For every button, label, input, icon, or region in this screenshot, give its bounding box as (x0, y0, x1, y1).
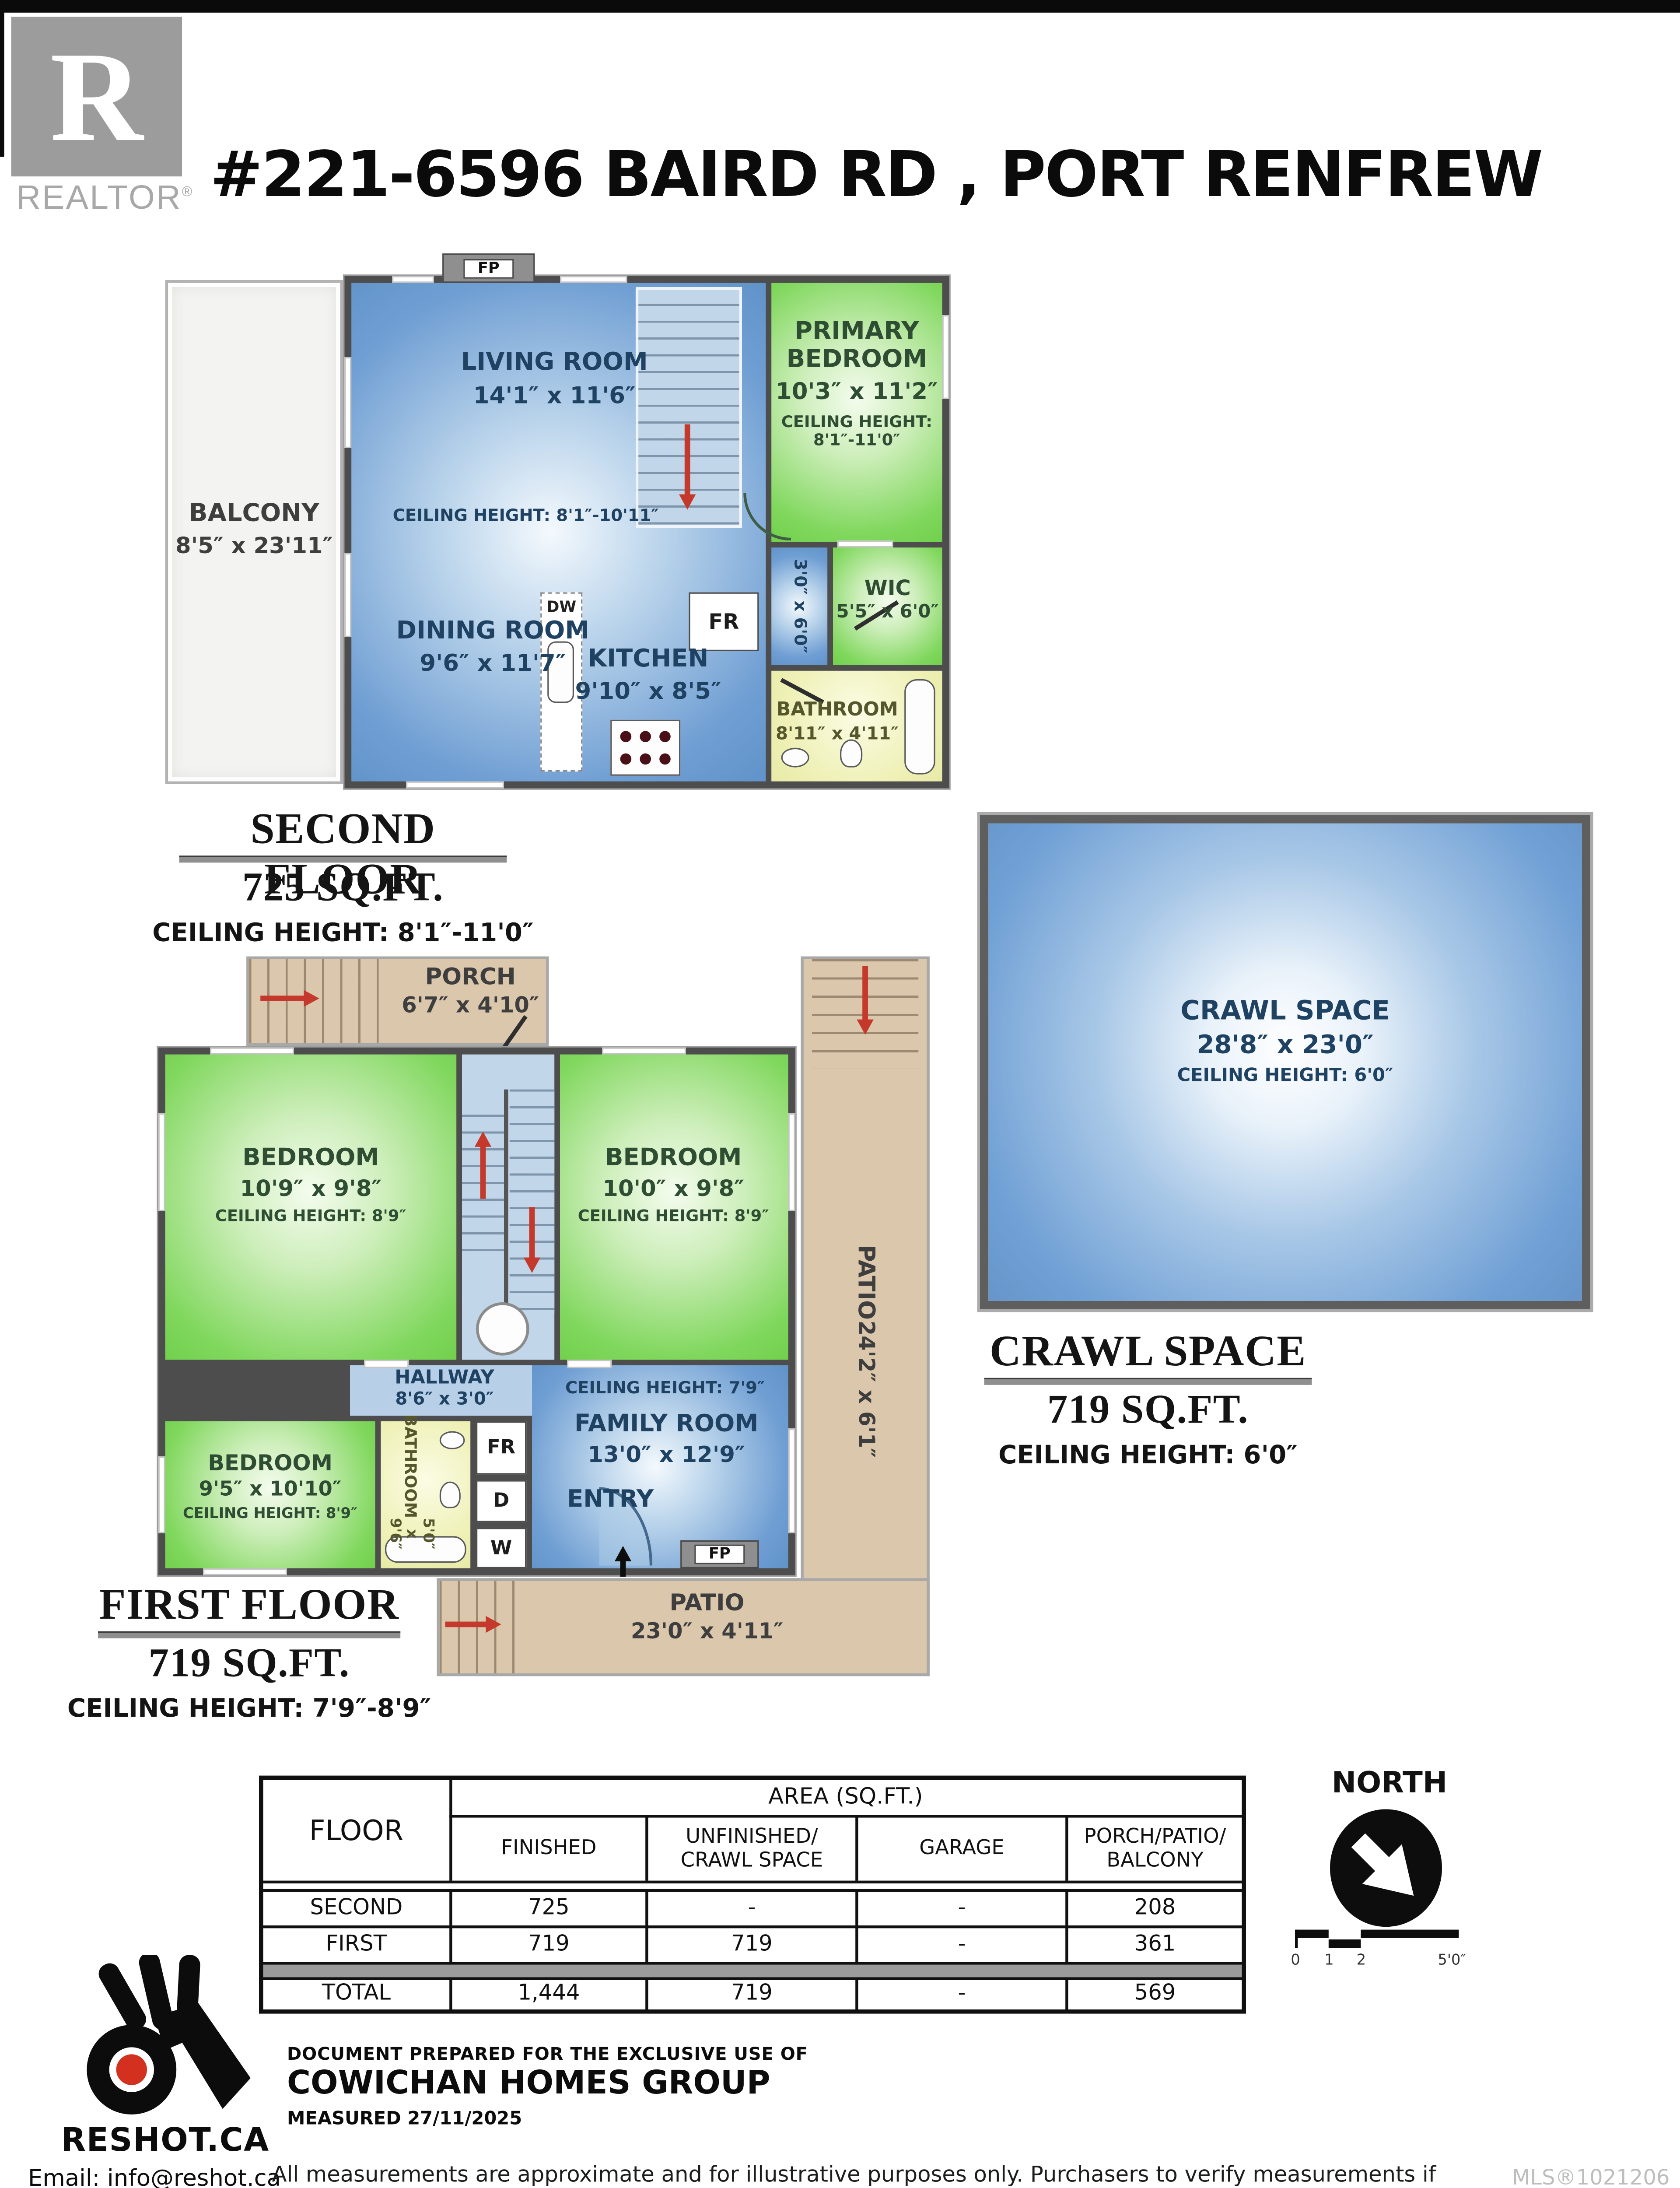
scale-bar-icon: 0 1 2 5'0″ (1291, 1930, 1473, 1972)
bedroom-tr-label: BEDROOM 10'0″ x 9'8″ CEILING HEIGHT: 8'9… (561, 1146, 785, 1225)
stair-landing-circle (476, 1302, 529, 1356)
fridge-label: FR (709, 609, 739, 635)
fireplace-first: FP (680, 1540, 759, 1568)
window (210, 1048, 294, 1055)
window (158, 1456, 165, 1533)
toilet-first-icon (440, 1482, 461, 1508)
table-value: 719 (651, 1928, 853, 1962)
first-floor-area: 719 SQ.FT. (81, 1641, 417, 1687)
bedroom-tl-name: BEDROOM (186, 1146, 436, 1172)
first-floor-ceiling: CEILING HEIGHT: 7'9″-8'9″ (39, 1694, 459, 1724)
table-row-label: TOTAL (263, 1977, 450, 2009)
bedroom-bl-name: BEDROOM (165, 1452, 375, 1476)
family-dims: 13'0″ x 12'9″ (549, 1442, 784, 1467)
realtor-word: REALTOR (17, 179, 182, 217)
fridge-second: FR (689, 593, 759, 651)
table-row-label: SECOND (263, 1892, 450, 1925)
table-line (1065, 1815, 1068, 2009)
porch-label: PORCH 6'7″ x 4'10″ (395, 965, 546, 1019)
dryer: D (476, 1480, 526, 1522)
porch-name: PORCH (395, 965, 546, 991)
family-room-label: FAMILY ROOM 13'0″ x 12'9″ (549, 1412, 784, 1468)
window (344, 357, 351, 448)
window (158, 1113, 165, 1211)
table-double-line (263, 1881, 1242, 1892)
patio-bottom-name: PATIO (560, 1591, 854, 1616)
window (788, 1113, 795, 1211)
measured-date: MEASURED 27/11/2025 (287, 2109, 522, 2130)
crawl-ceiling-note: CEILING HEIGHT: 6'0″ (980, 1068, 1590, 1088)
page-title: #221-6596 BAIRD RD , PORT RENFREW (210, 137, 1542, 212)
stove-icon (610, 720, 680, 776)
table-value: 725 (452, 1892, 646, 1925)
second-floor-area: 725 SQ.FT. (168, 866, 518, 912)
patio-bottom-dims: 23'0″ x 4'11″ (560, 1621, 854, 1645)
washer: W (476, 1528, 526, 1568)
second-floor-ceiling: CEILING HEIGHT: 8'1″-11'0″ (126, 919, 560, 948)
fireplace-first-label: FP (695, 1545, 745, 1564)
primary-ceiling-1: CEILING HEIGHT: (771, 413, 942, 431)
patio-bottom-label: PATIO 23'0″ x 4'11″ (560, 1591, 854, 1645)
window (560, 276, 627, 283)
bathroom-second-label: BATHROOM 8'11″ x 4'11″ (760, 700, 914, 744)
patio-side-name: PATIO (852, 1245, 878, 1320)
table-col-finished: FINISHED (452, 1818, 646, 1881)
fireplace-label: FP (464, 258, 514, 278)
bedroom-bl-ceiling: CEILING HEIGHT: 8'9″ (165, 1506, 375, 1523)
hallway-name: HALLWAY (350, 1368, 539, 1389)
logo-red-dot (116, 2054, 147, 2085)
patio-side-label: PATIO 24'2″ x 6'1″ (826, 1190, 904, 1512)
living-dims: 14'1″ x 11'6″ (400, 383, 708, 409)
bedroom-tl-dims: 10'9″ x 9'8″ (186, 1176, 436, 1201)
living-room-label: LIVING ROOM 14'1″ x 11'6″ (400, 350, 708, 409)
wic-dims: 5'5″ x 6'0″ (830, 603, 945, 624)
heading-underline (98, 1631, 400, 1637)
bathroom-first-dims: 5'0″ x 9'6″ (385, 1518, 435, 1549)
dining-name: DINING ROOM (367, 619, 619, 646)
floor-plan-sheet: R REALTOR® #221-6596 BAIRD RD , PORT REN… (0, 0, 1680, 2188)
crawl-dims: 28'8″ x 23'0″ (980, 1032, 1590, 1061)
left-black-edge (0, 0, 4, 157)
crawl-heading: CRAWL SPACE (973, 1326, 1323, 1376)
living-name: LIVING ROOM (400, 350, 708, 378)
table-value: 1,444 (452, 1977, 646, 2009)
kitchen-label: KITCHEN 9'10″ x 8'5″ (557, 647, 739, 704)
heading-underline (179, 856, 507, 862)
disclaimer: All measurements are approximate and for… (224, 2162, 1484, 2188)
scale-tick-0: 0 (1291, 1952, 1300, 1969)
top-black-bar (0, 0, 1680, 13)
primary-name: PRIMARY BEDROOM (771, 319, 942, 374)
prepared-for-line: DOCUMENT PREPARED FOR THE EXCLUSIVE USE … (287, 2043, 808, 2064)
north-compass-icon (1330, 1809, 1442, 1927)
table-value: 719 (452, 1928, 646, 1962)
table-value: 361 (1071, 1928, 1239, 1962)
balcony-name: BALCONY (165, 501, 343, 529)
table-row-label: FIRST (263, 1928, 450, 1962)
table-value: - (858, 1928, 1066, 1962)
corridor-label: 3'0″ x 6'0″ (771, 547, 827, 665)
table-value: - (858, 1977, 1066, 2009)
window (344, 553, 351, 637)
balcony-dims: 8'5″ x 23'11″ (165, 533, 343, 558)
primary-dims: 10'3″ x 11'2″ (771, 380, 942, 406)
bedroom-bl-dims: 9'5″ x 10'10″ (165, 1479, 375, 1502)
bathroom-second-name: BATHROOM (760, 700, 914, 721)
realtor-r-icon: R (50, 32, 143, 161)
wic-name: WIC (830, 577, 945, 600)
dishwasher-label: DW (536, 600, 587, 617)
scale-tick-50: 5'0″ (1438, 1952, 1466, 1969)
north-label: NORTH (1323, 1767, 1456, 1800)
wic-label: WIC 5'5″ x 6'0″ (830, 577, 945, 624)
realtor-wordmark: REALTOR® (0, 179, 210, 219)
mls-number: MLS®1021206 (1512, 2165, 1669, 2188)
stair-divider (504, 1090, 508, 1314)
dryer-label: D (493, 1490, 509, 1512)
entry-label: ENTRY (540, 1487, 680, 1514)
heading-underline (984, 1378, 1312, 1384)
scale-tick-2: 2 (1357, 1952, 1366, 1969)
balcony-label: BALCONY 8'5″ x 23'11″ (165, 501, 343, 558)
area-table: FLOOR AREA (SQ.FT.) FINISHED UNFINISHED/… (259, 1776, 1246, 2014)
kitchen-dims: 9'10″ x 8'5″ (557, 679, 739, 705)
table-area-header: AREA (SQ.FT.) (449, 1780, 1242, 1815)
window (788, 1428, 795, 1533)
realtor-logo: R (11, 17, 182, 176)
table-line (645, 1815, 648, 2009)
window (602, 1048, 686, 1055)
patio-side-dims: 24'2″ x 6'1″ (853, 1320, 878, 1458)
window (942, 315, 949, 399)
table-value: 569 (1071, 1977, 1239, 2009)
registered-mark: ® (182, 185, 194, 200)
window (406, 782, 504, 789)
table-value: - (651, 1892, 853, 1925)
window (837, 540, 893, 547)
hallway-dims: 8'6″ x 3'0″ (350, 1389, 539, 1409)
table-value: 208 (1071, 1892, 1239, 1925)
bedroom-bl-label: BEDROOM 9'5″ x 10'10″ CEILING HEIGHT: 8'… (165, 1452, 375, 1522)
crawl-space-label: CRAWL SPACE 28'8″ x 23'0″ CEILING HEIGHT… (980, 997, 1590, 1088)
sink-first-icon (440, 1431, 465, 1449)
table-col-porch: PORCH/PATIO/ BALCONY (1071, 1818, 1239, 1881)
scale-tick-1: 1 (1324, 1952, 1333, 1969)
window (392, 276, 434, 283)
family-name: FAMILY ROOM (549, 1412, 784, 1438)
bedroom-tr-dims: 10'0″ x 9'8″ (561, 1176, 785, 1201)
bathroom-first-name: BATHROOM (401, 1414, 419, 1518)
bedroom-tr-ceiling: CEILING HEIGHT: 8'9″ (561, 1207, 785, 1225)
kitchen-name: KITCHEN (557, 647, 739, 674)
primary-bedroom-label: PRIMARY BEDROOM 10'3″ x 11'2″ CEILING HE… (771, 319, 942, 449)
fridge-first-label: FR (487, 1437, 515, 1459)
bedroom-tl-label: BEDROOM 10'9″ x 9'8″ CEILING HEIGHT: 8'9… (186, 1146, 436, 1225)
primary-ceiling-2: 8'1″-11'0″ (771, 431, 942, 449)
table-floor-header: FLOOR (263, 1780, 450, 1880)
porch-stairs (249, 959, 395, 1043)
bathroom-second-dims: 8'11″ x 4'11″ (760, 724, 914, 744)
stairs-down-flight (510, 1090, 554, 1314)
bedroom-tr-name: BEDROOM (561, 1146, 785, 1172)
table-value: 719 (651, 1977, 853, 2009)
family-ceiling-note: CEILING HEIGHT: 7'9″ (553, 1379, 777, 1398)
hallway-label: HALLWAY 8'6″ x 3'0″ (350, 1368, 539, 1409)
fridge-first: FR (476, 1421, 526, 1475)
window (203, 1568, 287, 1575)
door-gap (567, 1360, 612, 1368)
first-floor-heading: FIRST FLOOR (81, 1580, 417, 1630)
client-name: COWICHAN HOMES GROUP (287, 2065, 770, 2102)
crawl-area: 719 SQ.FT. (973, 1388, 1323, 1434)
living-ceiling-note: CEILING HEIGHT: 8'1″-10'11″ (361, 507, 690, 526)
table-value: - (858, 1892, 1066, 1925)
sink-second-icon (781, 748, 809, 768)
bathroom-first-label: BATHROOM 5'0″ x 9'6″ (384, 1426, 437, 1538)
washer-label: W (490, 1537, 512, 1559)
crawl-name: CRAWL SPACE (980, 997, 1590, 1027)
reshot-brand: RESHOT.CA (53, 2123, 277, 2159)
fireplace-second: FP (442, 253, 535, 283)
table-col-garage: GARAGE (858, 1818, 1066, 1881)
crawl-ceiling: CEILING HEIGHT: 6'0″ (938, 1441, 1358, 1470)
table-col-unfinished: UNFINISHED/ CRAWL SPACE (651, 1818, 853, 1881)
reshot-logo-icon (73, 1955, 257, 2120)
bedroom-tl-ceiling: CEILING HEIGHT: 8'9″ (186, 1207, 436, 1225)
